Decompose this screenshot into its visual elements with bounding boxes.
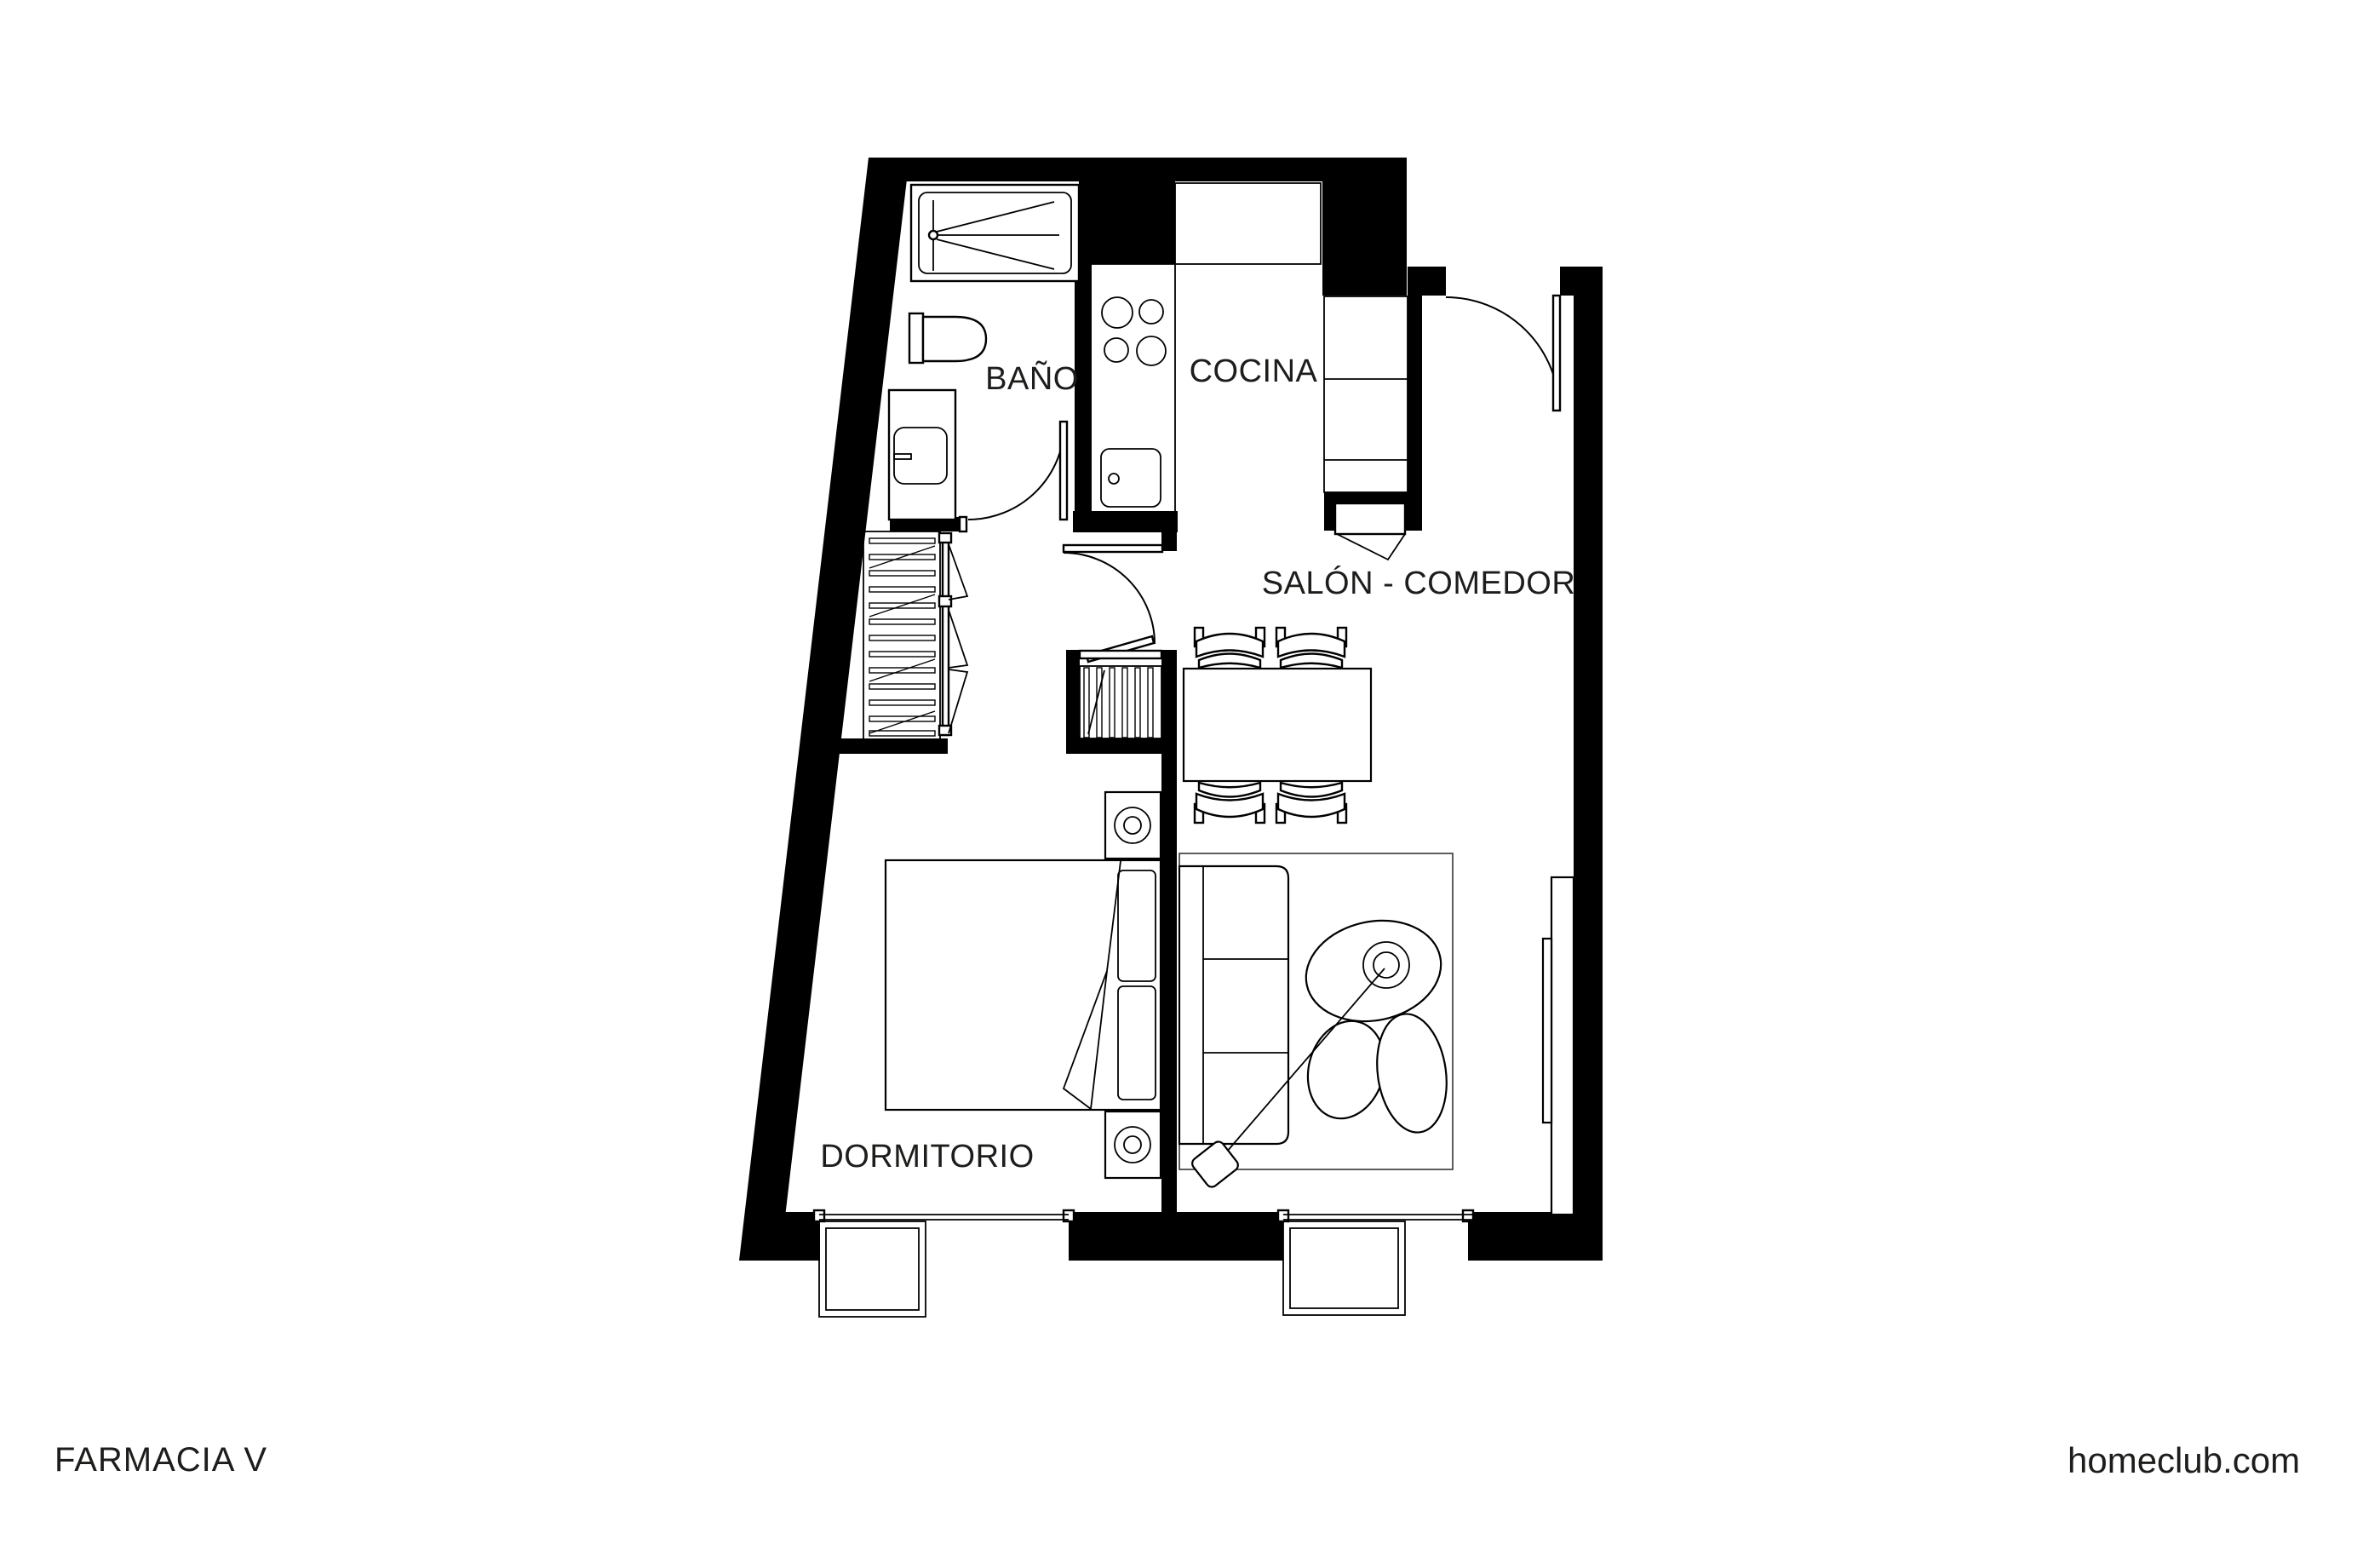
dining-chair: [1195, 783, 1265, 823]
washer: [1335, 503, 1405, 560]
plant: [1297, 909, 1454, 1137]
double-bed: [886, 860, 1161, 1110]
tall-kitchen-units: [1324, 296, 1408, 492]
kitchen-hob: [1102, 297, 1166, 365]
louver-closet: [1080, 651, 1161, 738]
room-label-living: SALÓN - COMEDOR: [1262, 565, 1576, 601]
floor-plan-sheet: BAÑO COCINA SALÓN - COMEDOR DORMITORIO F…: [0, 0, 2380, 1551]
room-label-kitchen: COCINA: [1190, 353, 1318, 389]
bathroom-fixtures: [889, 185, 1079, 531]
tv-sideboard: [1543, 877, 1574, 1215]
hall-door: [1064, 545, 1162, 662]
footer-project-label: FARMACIA V: [54, 1441, 267, 1479]
living-furniture: [1179, 853, 1574, 1215]
room-label-bedroom: DORMITORIO: [820, 1139, 1034, 1175]
bedroom-furniture: [886, 792, 1161, 1178]
shower-tray: [911, 185, 1079, 281]
toilet: [909, 313, 986, 363]
vanity-sink: [889, 390, 955, 520]
sofa: [1179, 866, 1288, 1144]
kitchen-sink: [1101, 449, 1161, 507]
entry-door: [1446, 296, 1560, 411]
dining-chair: [1195, 628, 1265, 668]
bathroom-door: [960, 422, 1067, 531]
footer-website-label: homeclub.com: [2067, 1440, 2300, 1480]
dining-set: [1184, 628, 1371, 823]
nightstand: [1105, 1112, 1161, 1178]
living-window: [1278, 1210, 1473, 1315]
tv: [1543, 939, 1551, 1123]
dining-chair: [1276, 783, 1346, 823]
nightstand: [1105, 792, 1161, 859]
bedroom-window: [814, 1210, 1074, 1317]
dining-chair: [1276, 628, 1346, 668]
dining-table: [1184, 669, 1371, 781]
room-label-bathroom: BAÑO: [985, 360, 1079, 397]
floor-plan-svg: BAÑO COCINA SALÓN - COMEDOR DORMITORIO F…: [0, 0, 2380, 1551]
folding-wardrobe: [863, 531, 967, 740]
